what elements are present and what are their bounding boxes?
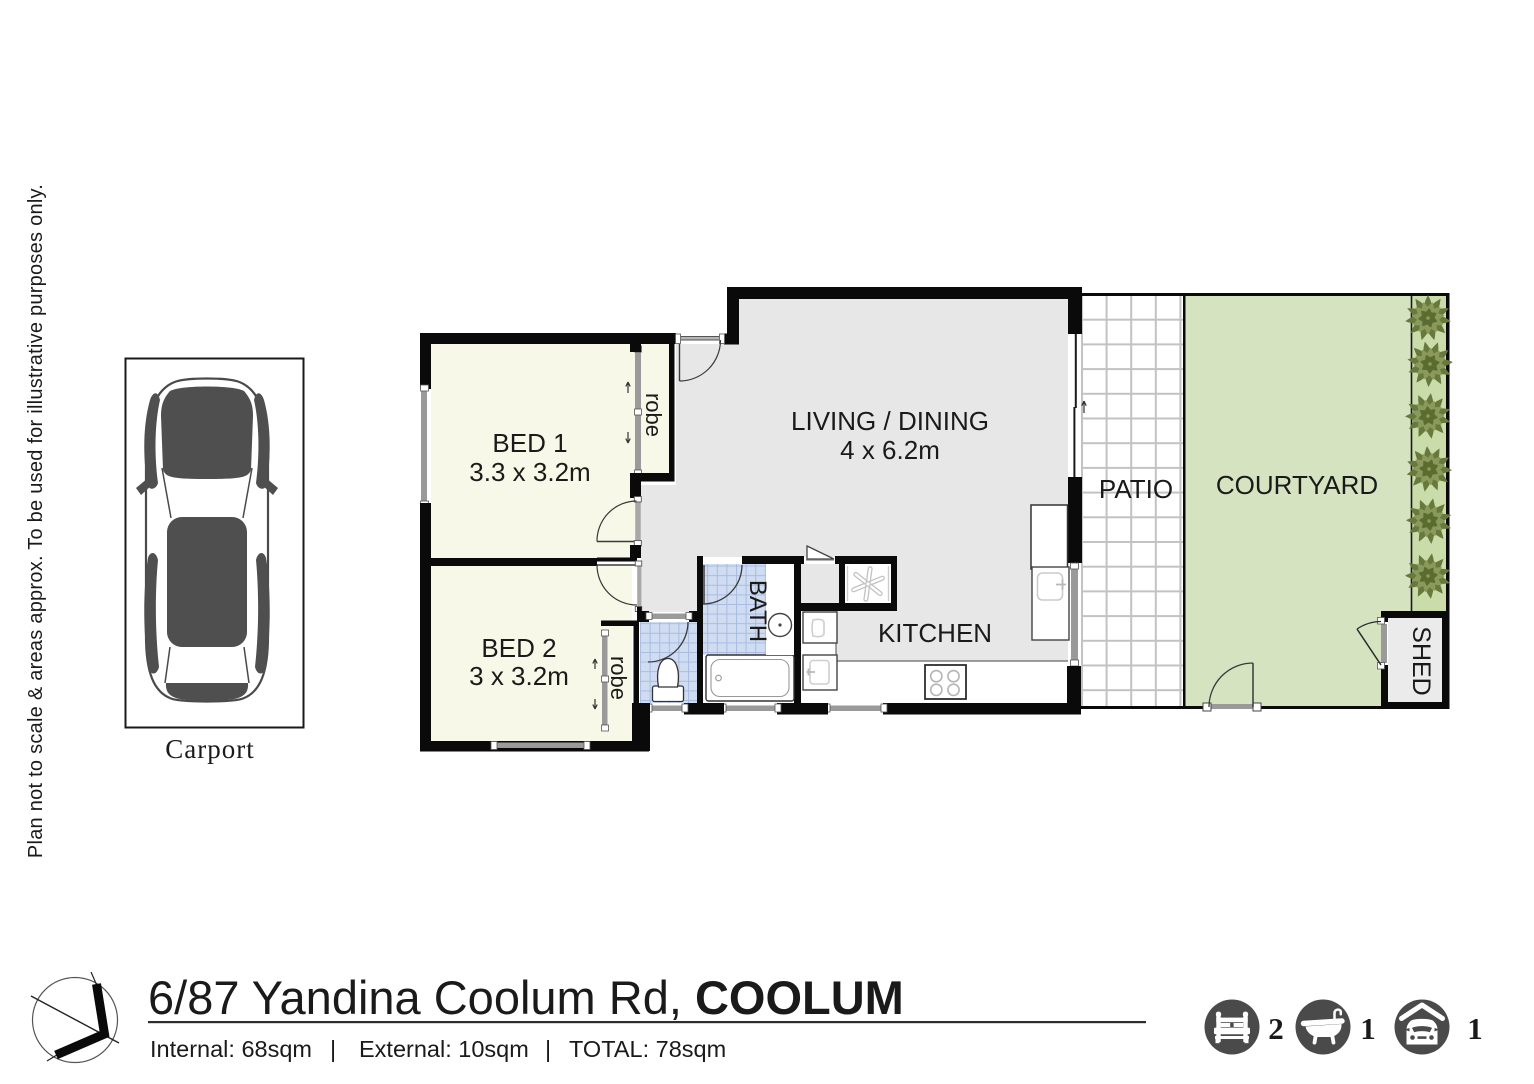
svg-text:Internal: 68sqm|External: 10sq: Internal: 68sqm|External: 10sqm|TOTAL: 7… — [150, 1036, 726, 1062]
svg-text:robe: robe — [641, 393, 666, 437]
svg-text:3.3 x 3.2m: 3.3 x 3.2m — [469, 457, 590, 487]
svg-text:LIVING / DINING: LIVING / DINING — [791, 406, 989, 436]
svg-text:BED 1: BED 1 — [492, 428, 567, 458]
svg-text:PATIO: PATIO — [1099, 474, 1173, 504]
svg-text:BED 2: BED 2 — [481, 633, 556, 663]
svg-text:KITCHEN: KITCHEN — [878, 618, 992, 648]
svg-text:robe: robe — [606, 656, 631, 700]
svg-text:2: 2 — [1268, 1011, 1284, 1046]
svg-text:1: 1 — [1467, 1011, 1483, 1046]
svg-text:6/87 Yandina Coolum Rd, COOLUM: 6/87 Yandina Coolum Rd, COOLUM — [148, 971, 904, 1024]
svg-text:Plan not to scale & areas appr: Plan not to scale & areas approx. To be … — [25, 184, 47, 858]
svg-text:COURTYARD: COURTYARD — [1216, 470, 1378, 500]
svg-text:1: 1 — [1360, 1011, 1376, 1046]
svg-text:Carport: Carport — [165, 734, 254, 764]
svg-text:BATH: BATH — [744, 580, 771, 642]
svg-text:3 x 3.2m: 3 x 3.2m — [469, 661, 569, 691]
svg-text:SHED: SHED — [1407, 626, 1435, 695]
svg-text:4 x 6.2m: 4 x 6.2m — [840, 435, 940, 465]
